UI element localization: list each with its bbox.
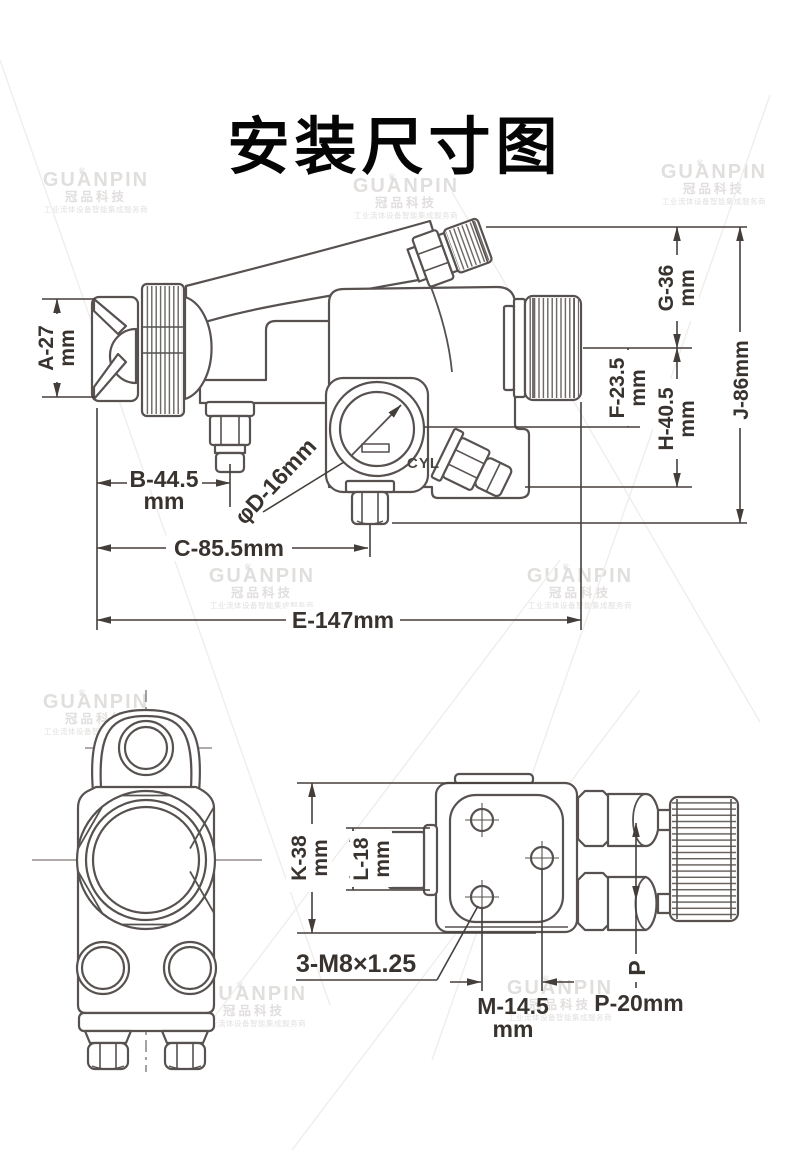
svg-text:G-36: G-36 xyxy=(655,265,678,312)
svg-text:mm: mm xyxy=(371,840,394,877)
svg-text:3-M8×1.25: 3-M8×1.25 xyxy=(296,950,416,978)
retaining-ring-knurl xyxy=(144,286,182,414)
svg-text:mm: mm xyxy=(309,839,332,876)
rear-barrel-step xyxy=(424,825,437,895)
dim-label-F: F-23.5 mm xyxy=(604,350,650,426)
bottom-nut-right xyxy=(162,1031,208,1069)
svg-text:A-27: A-27 xyxy=(35,325,58,371)
gun-front-barrel xyxy=(200,321,342,403)
cyl-label: CYL xyxy=(407,455,440,472)
svg-text:J-86mm: J-86mm xyxy=(730,340,753,419)
dim-label-P: P-20mm xyxy=(594,990,683,1016)
dim-label-C: C-85.5mm xyxy=(166,535,292,561)
svg-text:P: P xyxy=(624,960,650,975)
technical-drawing: CYL xyxy=(0,0,790,1157)
svg-text:mm: mm xyxy=(676,269,699,306)
tab-hole-inner xyxy=(125,727,167,769)
rear-barrel xyxy=(389,832,424,888)
svg-text:mm: mm xyxy=(627,369,650,406)
ring-front-inner xyxy=(93,807,199,913)
front-fluid-fitting xyxy=(206,402,254,472)
port-right-inner xyxy=(169,947,211,989)
dim-label-thread: 3-M8×1.25 xyxy=(296,950,416,978)
rear-knob xyxy=(670,797,738,921)
dim-label-A: A-27 mm xyxy=(33,314,79,382)
svg-text:K-38: K-38 xyxy=(288,835,311,881)
dim-label-P-axis: P xyxy=(624,954,650,982)
dim-label-J: J-86mm xyxy=(726,332,753,428)
cylinder-notch xyxy=(362,444,389,452)
rear-fitting-bottom xyxy=(578,873,671,930)
dim-label-G: G-36 mm xyxy=(653,255,699,321)
svg-text:C-85.5mm: C-85.5mm xyxy=(174,535,284,561)
rear-view-drawing xyxy=(389,774,738,932)
bottom-nut-left xyxy=(85,1031,131,1069)
svg-text:H-40.5: H-40.5 xyxy=(655,387,678,450)
dim-label-B: B-44.5 mm xyxy=(127,466,202,514)
dim-label-E: E-147mm xyxy=(286,607,400,633)
svg-text:mm: mm xyxy=(144,488,185,514)
base-plate xyxy=(79,1013,214,1031)
port-left-inner xyxy=(82,947,124,989)
dim-label-M: M-14.5 mm xyxy=(477,993,549,1042)
rear-fitting-top xyxy=(578,791,671,846)
dim-label-L: L-18 mm xyxy=(350,831,394,887)
installation-dimension-page: 安装尺寸图 ♛GUANPIN 冠品科技 工业流体设备智能集成服务商 ♛GUANP… xyxy=(0,0,790,1157)
svg-text:mm: mm xyxy=(56,329,79,366)
fluid-adjust-knob xyxy=(504,296,581,400)
bottom-fluid-fitting xyxy=(346,481,394,524)
front-view-drawing xyxy=(32,690,262,1072)
svg-text:mm: mm xyxy=(676,400,699,437)
dim-label-K: K-38 mm xyxy=(286,824,332,892)
svg-text:E-147mm: E-147mm xyxy=(292,607,394,633)
svg-text:L-18: L-18 xyxy=(350,837,373,881)
dim-label-H: H-40.5 mm xyxy=(653,379,699,459)
svg-text:F-23.5: F-23.5 xyxy=(606,357,629,418)
svg-text:P-20mm: P-20mm xyxy=(594,990,683,1016)
svg-text:mm: mm xyxy=(493,1016,534,1042)
